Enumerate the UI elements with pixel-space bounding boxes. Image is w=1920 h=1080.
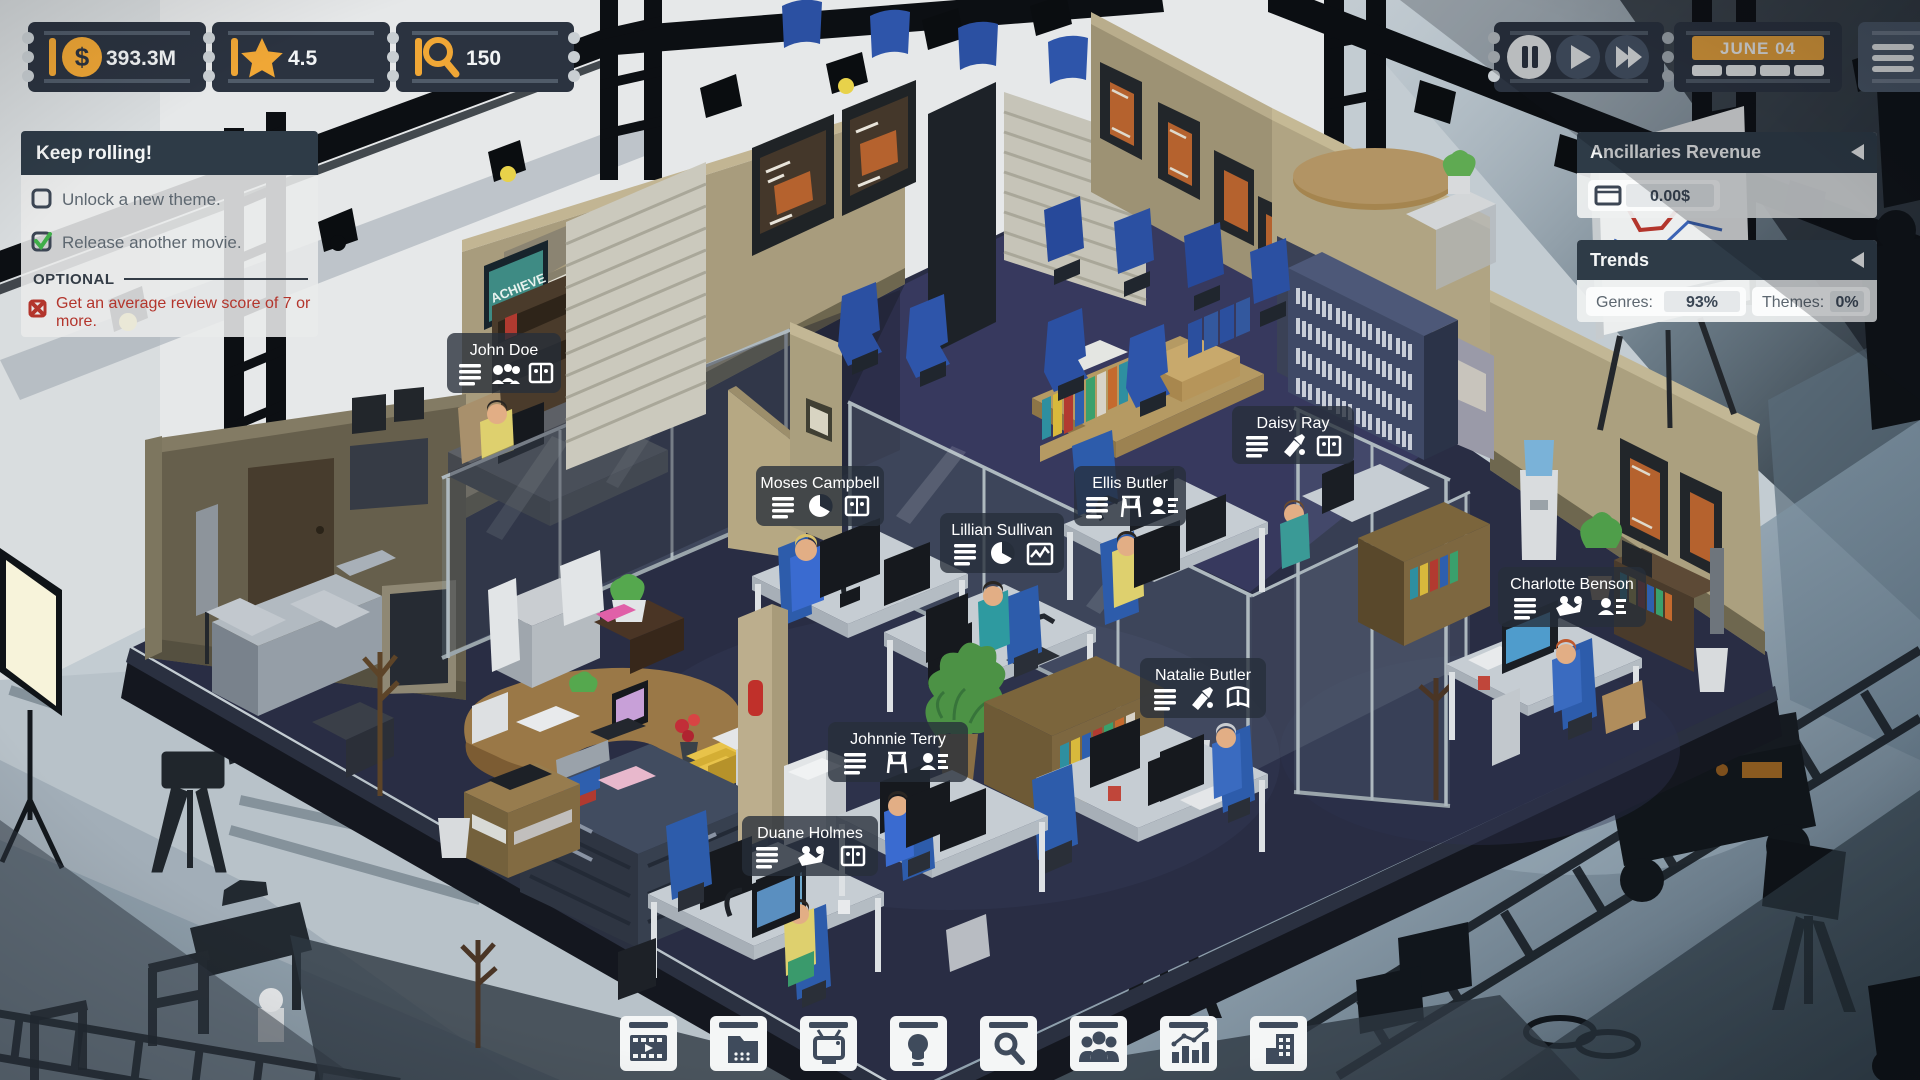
- svg-text:more.: more.: [56, 313, 97, 330]
- svg-text:Daisy Ray: Daisy Ray: [1257, 415, 1330, 432]
- svg-text:Lillian Sullivan: Lillian Sullivan: [951, 522, 1052, 539]
- svg-text:93%: 93%: [1686, 294, 1718, 311]
- svg-text:Ellis Butler: Ellis Butler: [1092, 475, 1168, 492]
- svg-text:Release another movie.: Release another movie.: [62, 233, 242, 252]
- svg-text:Johnnie Terry: Johnnie Terry: [850, 731, 946, 748]
- svg-text:Get an average review score of: Get an average review score of 7 or: [56, 295, 311, 312]
- svg-text:Duane Holmes: Duane Holmes: [757, 825, 863, 842]
- svg-text:OPTIONAL: OPTIONAL: [33, 271, 115, 288]
- svg-text:Moses Campbell: Moses Campbell: [760, 475, 879, 492]
- svg-text:Keep rolling!: Keep rolling!: [36, 143, 152, 164]
- svg-text:John Doe: John Doe: [470, 342, 539, 359]
- svg-text:393.3M: 393.3M: [106, 47, 176, 70]
- svg-text:4.5: 4.5: [288, 47, 318, 70]
- svg-text:Unlock a new theme.: Unlock a new theme.: [62, 190, 221, 209]
- svg-text:$: $: [75, 42, 90, 72]
- svg-text:Charlotte Benson: Charlotte Benson: [1510, 576, 1634, 593]
- svg-text:Genres:: Genres:: [1596, 294, 1653, 311]
- svg-text:Trends: Trends: [1590, 250, 1649, 270]
- svg-text:150: 150: [466, 47, 501, 70]
- svg-text:Natalie Butler: Natalie Butler: [1155, 667, 1252, 684]
